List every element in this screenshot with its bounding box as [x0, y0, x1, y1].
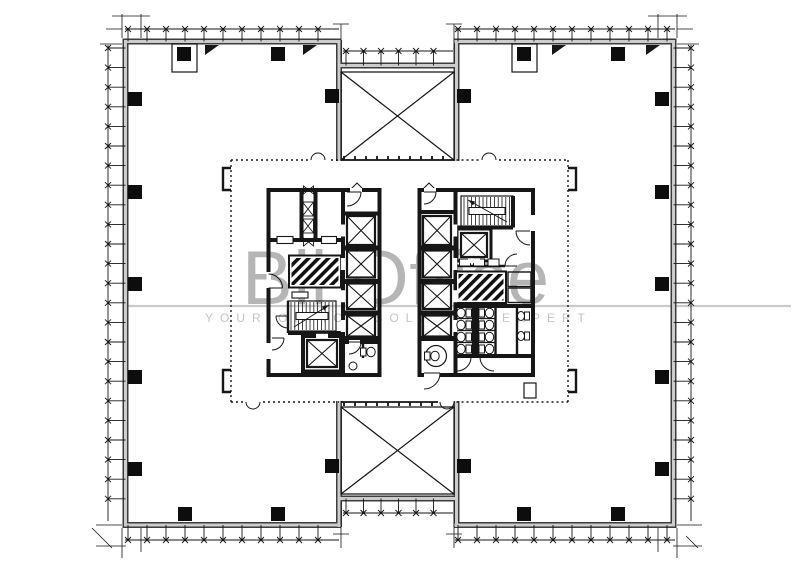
elevator-icon: [423, 216, 457, 245]
structural-column: [271, 47, 285, 61]
elevator-icon: [341, 284, 375, 310]
structural-column: [655, 277, 669, 291]
structural-column: [457, 459, 471, 473]
restroom-center-wall: [472, 306, 479, 356]
elevator-door-gap: [341, 258, 346, 270]
structural-column: [517, 507, 531, 521]
structural-column: [177, 47, 191, 61]
structural-column: [325, 89, 339, 103]
stair-icon: [461, 196, 513, 226]
structural-column: [611, 47, 625, 61]
toilet-icon: [479, 332, 494, 342]
elevator-door-gap: [341, 225, 346, 237]
structural-column: [128, 462, 142, 476]
elevator-icon: [423, 284, 457, 310]
elevator-door-gap: [453, 290, 458, 302]
toilet-icon: [361, 347, 376, 357]
elevator-door-gap: [453, 258, 458, 270]
elevator-icon: [423, 316, 457, 337]
structural-column: [271, 507, 285, 521]
elevator-door-gap: [453, 225, 458, 237]
elevator-door-gap: [341, 320, 346, 332]
urinal-icon: [518, 332, 530, 341]
floor-plan-sheet: Bli Office YOUR OFFICE SOLUTION EXPERT: [0, 0, 799, 572]
toilet-icon: [479, 320, 494, 330]
mullion-ladder: [674, 45, 695, 521]
floor-plan-canvas: Bli Office YOUR OFFICE SOLUTION EXPERT: [0, 0, 799, 572]
toilet-icon: [457, 344, 472, 354]
structural-column: [611, 507, 625, 521]
structural-column: [128, 370, 142, 384]
structural-column: [655, 185, 669, 199]
elevator-door-gap: [468, 259, 480, 264]
structural-column: [457, 89, 471, 103]
structural-column: [178, 507, 192, 521]
elevator-icon: [341, 216, 375, 245]
structural-column: [128, 185, 142, 199]
structural-column: [128, 277, 142, 291]
toilet-icon: [457, 320, 472, 330]
toilet-icon: [457, 332, 472, 342]
toilet-icon: [479, 308, 494, 318]
elevator-door-gap: [341, 290, 346, 302]
corridor-door-stub: [524, 383, 536, 398]
mullion-ladder: [105, 45, 126, 521]
toilet-icon: [479, 344, 494, 354]
elevator-door-gap: [316, 334, 328, 339]
elevator-icon: [341, 251, 375, 278]
urinal-icon: [518, 312, 530, 321]
structural-column: [325, 459, 339, 473]
sink-icon: [349, 362, 357, 370]
elevator-icon: [423, 251, 457, 278]
structural-column: [517, 47, 531, 61]
toilet-icon: [425, 351, 440, 361]
elevator-icon: [341, 316, 375, 337]
hatched-service-shaft: [456, 272, 506, 304]
elevator-icon: [307, 334, 337, 367]
structural-column: [655, 462, 669, 476]
structural-column: [128, 92, 142, 106]
structural-column: [655, 370, 669, 384]
structural-column: [655, 92, 669, 106]
hatched-service-shaft: [289, 256, 341, 288]
toilet-icon: [457, 308, 472, 318]
